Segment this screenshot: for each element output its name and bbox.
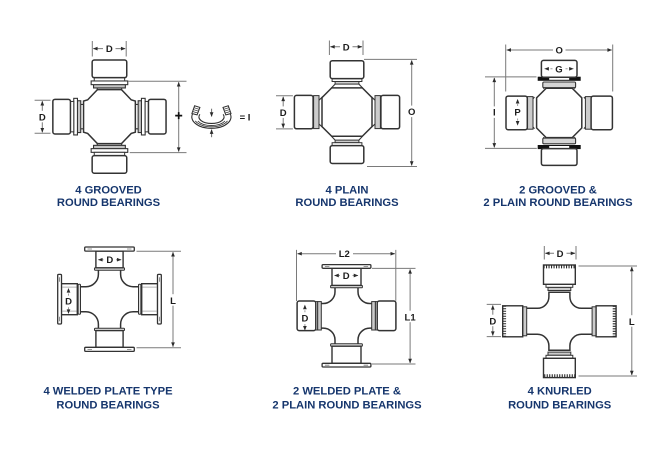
svg-text:2 GROOVED &: 2 GROOVED & <box>519 184 597 196</box>
svg-text:D: D <box>489 317 496 328</box>
svg-text:O: O <box>408 107 415 118</box>
svg-text:D: D <box>65 297 72 308</box>
svg-text:2 WELDED PLATE &: 2 WELDED PLATE & <box>293 386 401 398</box>
svg-text:L: L <box>629 317 635 328</box>
svg-text:2 PLAIN ROUND BEARINGS: 2 PLAIN ROUND BEARINGS <box>272 400 422 412</box>
svg-text:D: D <box>106 255 113 266</box>
svg-text:I: I <box>493 107 496 118</box>
svg-text:ROUND BEARINGS: ROUND BEARINGS <box>508 400 612 412</box>
svg-text:4 WELDED PLATE TYPE: 4 WELDED PLATE TYPE <box>43 386 173 398</box>
svg-text:ROUND BEARINGS: ROUND BEARINGS <box>57 197 161 209</box>
svg-text:L: L <box>170 296 176 307</box>
svg-text:4 PLAIN: 4 PLAIN <box>326 184 369 196</box>
svg-text:D: D <box>557 249 564 260</box>
svg-text:4 GROOVED: 4 GROOVED <box>75 184 142 196</box>
svg-text:ROUND BEARINGS: ROUND BEARINGS <box>56 400 160 412</box>
svg-text:4 KNURLED: 4 KNURLED <box>528 386 592 398</box>
svg-text:D: D <box>106 44 113 55</box>
svg-text:D: D <box>343 271 350 282</box>
svg-text:ROUND BEARINGS: ROUND BEARINGS <box>295 197 399 209</box>
svg-text:D: D <box>39 113 46 124</box>
svg-text:G: G <box>555 64 562 75</box>
svg-text:L1: L1 <box>405 313 417 324</box>
svg-text:= I: = I <box>240 112 251 123</box>
svg-text:O: O <box>556 46 563 57</box>
svg-text:D: D <box>280 108 287 119</box>
svg-text:D: D <box>343 42 350 53</box>
svg-text:D: D <box>301 313 308 324</box>
svg-text:2 PLAIN ROUND BEARINGS: 2 PLAIN ROUND BEARINGS <box>483 197 633 209</box>
svg-text:P: P <box>514 108 521 119</box>
svg-text:L2: L2 <box>339 249 350 260</box>
